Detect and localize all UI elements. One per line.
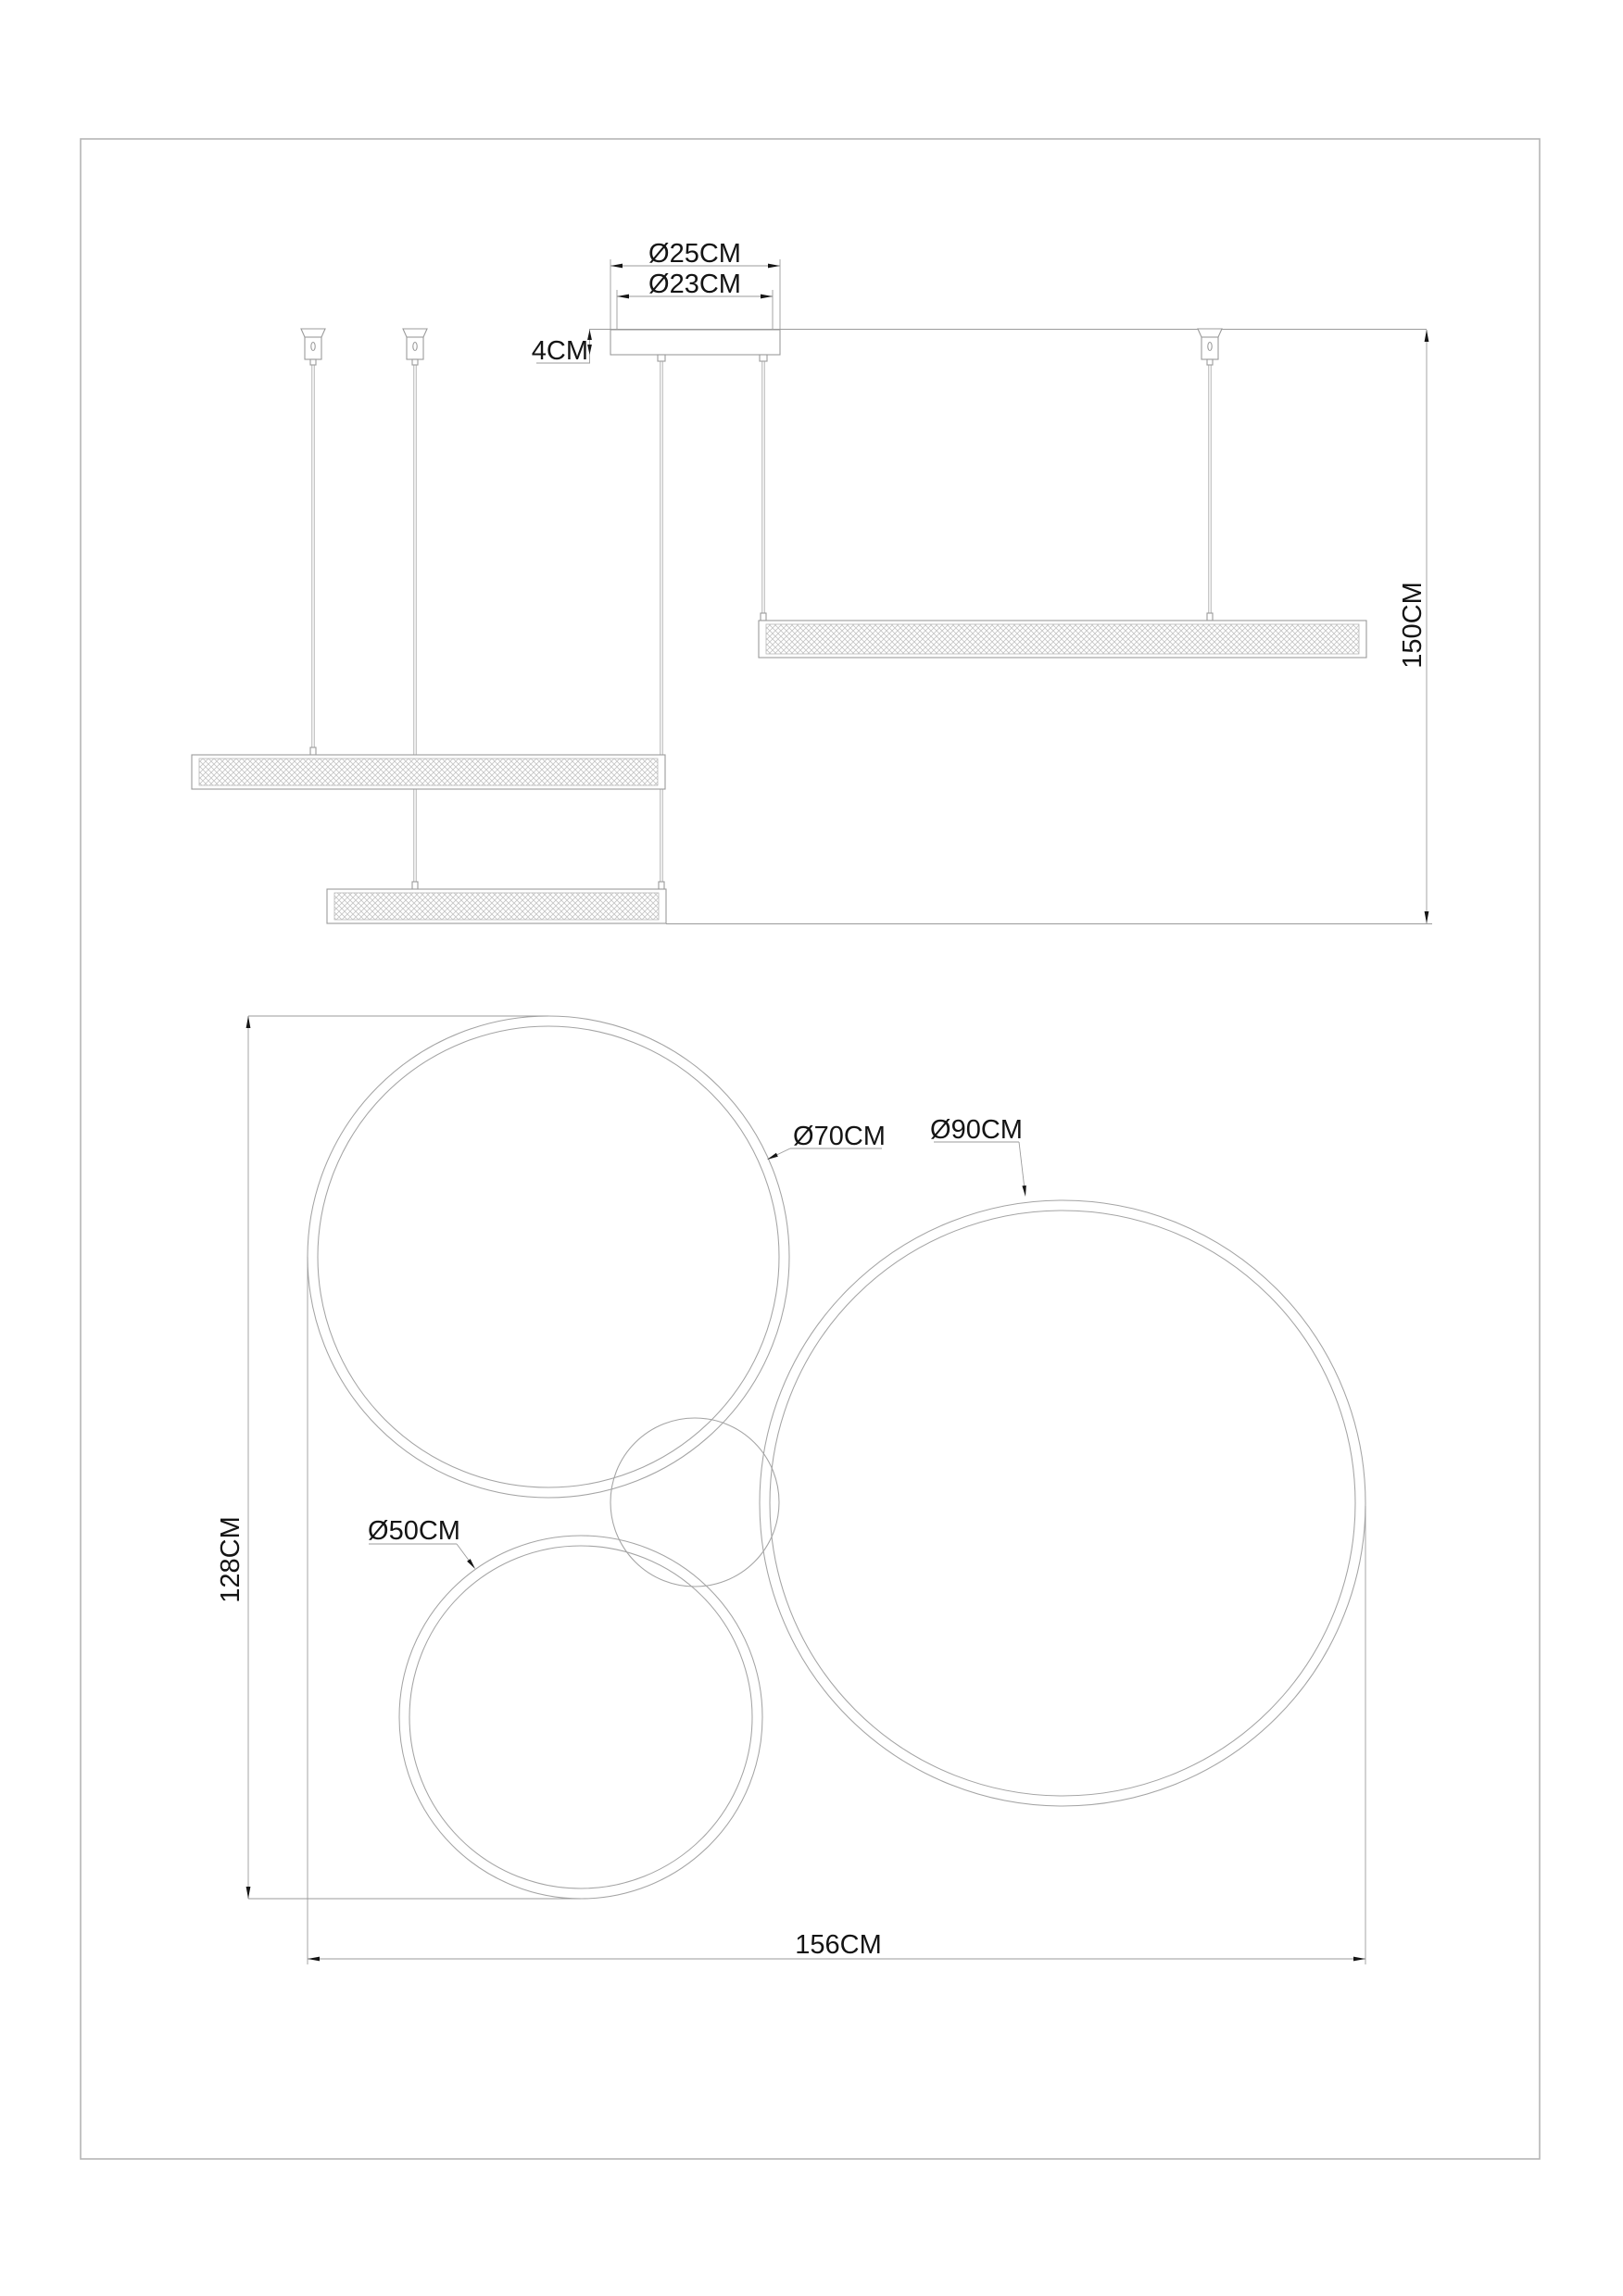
dimension-drawing-canvas: Ø25CM Ø23CM 4CM bbox=[0, 0, 1623, 2296]
canopy-height-label: 4CM bbox=[532, 336, 588, 366]
cable-fitting bbox=[412, 882, 418, 889]
canopy-cable-outlet bbox=[760, 355, 767, 361]
pendant-ring-90-side bbox=[759, 621, 1366, 658]
ring-90-label: Ø90CM bbox=[930, 1115, 1023, 1145]
canopy-outer-diameter-label: Ø25CM bbox=[648, 239, 741, 269]
cable-fitting bbox=[1207, 613, 1213, 621]
ring-70-plan bbox=[308, 1016, 789, 1498]
pendant-ring-50-side bbox=[327, 889, 666, 923]
ring-70-callout: Ø70CM bbox=[767, 1122, 886, 1160]
drop-height-label: 150CM bbox=[1398, 582, 1428, 669]
ring-50-plan bbox=[399, 1536, 762, 1899]
plan-depth-label: 128CM bbox=[216, 1516, 245, 1603]
cable-fitting bbox=[761, 613, 766, 621]
center-hub-circle bbox=[610, 1418, 779, 1587]
canopy-inner-diameter-label: Ø23CM bbox=[648, 270, 741, 299]
ring-90-plan bbox=[760, 1200, 1365, 1806]
plan-width-label: 156CM bbox=[795, 1930, 882, 1960]
cable-holder bbox=[301, 329, 325, 365]
drawing-page: Ø25CM Ø23CM 4CM bbox=[0, 0, 1623, 2296]
cable-holder bbox=[403, 329, 427, 365]
cable-fitting bbox=[310, 747, 316, 755]
ring-70-label: Ø70CM bbox=[793, 1122, 886, 1151]
pendant-ring-70-side bbox=[192, 755, 665, 789]
plan-top-view: 128CM 156CM Ø70CM Ø90CM Ø50CM bbox=[216, 1016, 1365, 1964]
canopy-cable-outlet bbox=[658, 355, 665, 361]
cable-fitting bbox=[659, 882, 664, 889]
cable-holder bbox=[1198, 329, 1222, 365]
ring-50-callout: Ø50CM bbox=[368, 1516, 475, 1569]
ceiling-canopy bbox=[610, 330, 780, 355]
ring-50-label: Ø50CM bbox=[368, 1516, 460, 1546]
side-elevation-view: Ø25CM Ø23CM 4CM bbox=[192, 239, 1432, 924]
ring-90-callout: Ø90CM bbox=[930, 1115, 1026, 1197]
